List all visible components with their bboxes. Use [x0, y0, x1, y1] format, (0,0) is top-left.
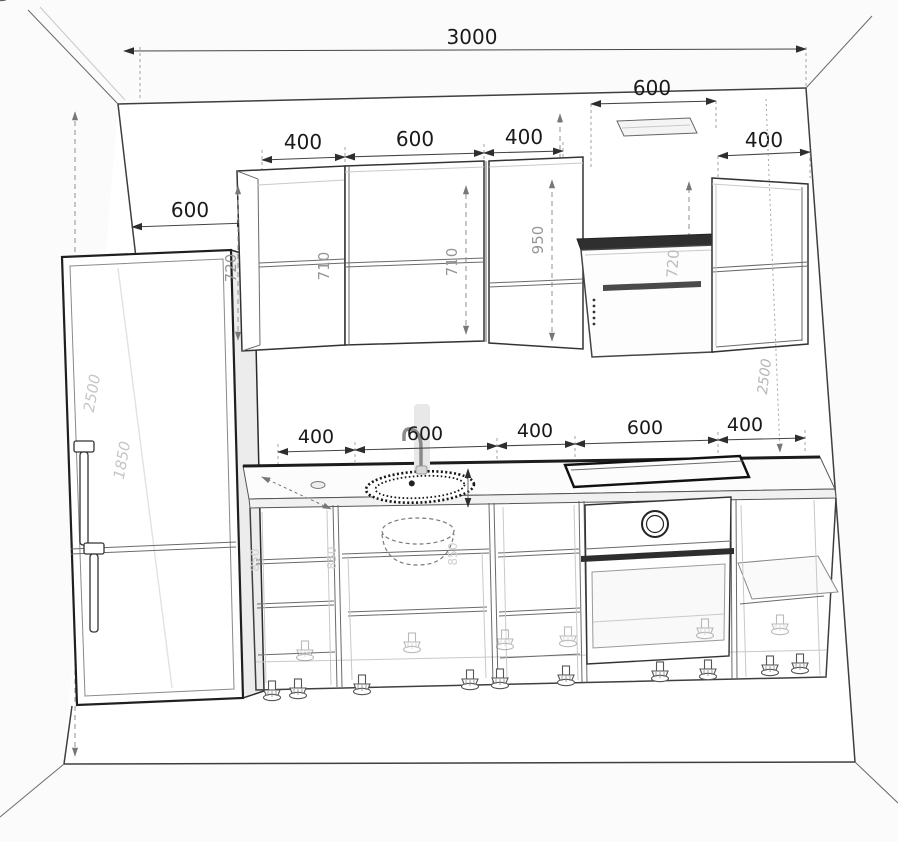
- fridge-handle-lower-cap: [84, 543, 104, 554]
- dim-label-lower-c: 400: [517, 420, 553, 442]
- wall-cabinet-right: [712, 178, 808, 352]
- kitchen-elevation-drawing: 3000 600 400 400 600 400 600: [0, 0, 898, 842]
- dim-label-base-height-3: 850: [446, 543, 460, 566]
- dim-label-hood-offset: 600: [633, 76, 671, 100]
- wall-cabinet-c: 950: [486, 157, 583, 349]
- dim-label-cab-a-inner-height: 710: [315, 252, 333, 281]
- dim-label-lower-b: 600: [407, 423, 443, 445]
- faucet-base: [416, 466, 427, 474]
- dim-label-base-height-1: 850: [248, 549, 262, 572]
- dim-label-upper-a: 400: [284, 130, 322, 154]
- ceiling-vent: [617, 118, 697, 136]
- dim-label-cab-b-height: 710: [443, 248, 461, 277]
- drawer-knob: [311, 482, 325, 489]
- dim-label-upper-right: 400: [745, 128, 783, 152]
- dim-label-lower-e: 400: [727, 414, 763, 436]
- fridge-handle-upper: [80, 452, 88, 545]
- fridge-handle-upper-cap: [74, 441, 94, 452]
- dim-label-total: 3000: [447, 25, 498, 49]
- dim-label-cab-c-height: 950: [529, 226, 547, 255]
- dim-label-cab-a-height: 720: [222, 254, 240, 283]
- dim-label-lower-d: 600: [627, 417, 663, 439]
- oven: [581, 497, 734, 664]
- dim-label-upper-b: 600: [396, 127, 434, 151]
- dim-label-base-height-2: 850: [325, 547, 339, 570]
- fridge-handle-lower: [90, 554, 98, 632]
- dim-label-lower-a: 400: [298, 426, 334, 448]
- dim-label-left-offset: 600: [171, 198, 209, 222]
- dim-label-hood-height: 720: [663, 249, 683, 279]
- fridge-front: [62, 250, 243, 705]
- dim-label-upper-c: 400: [505, 125, 543, 149]
- drawing-svg: 3000 600 400 400 600 400 600: [0, 0, 898, 842]
- wall-cabinet-b: 710: [345, 161, 484, 345]
